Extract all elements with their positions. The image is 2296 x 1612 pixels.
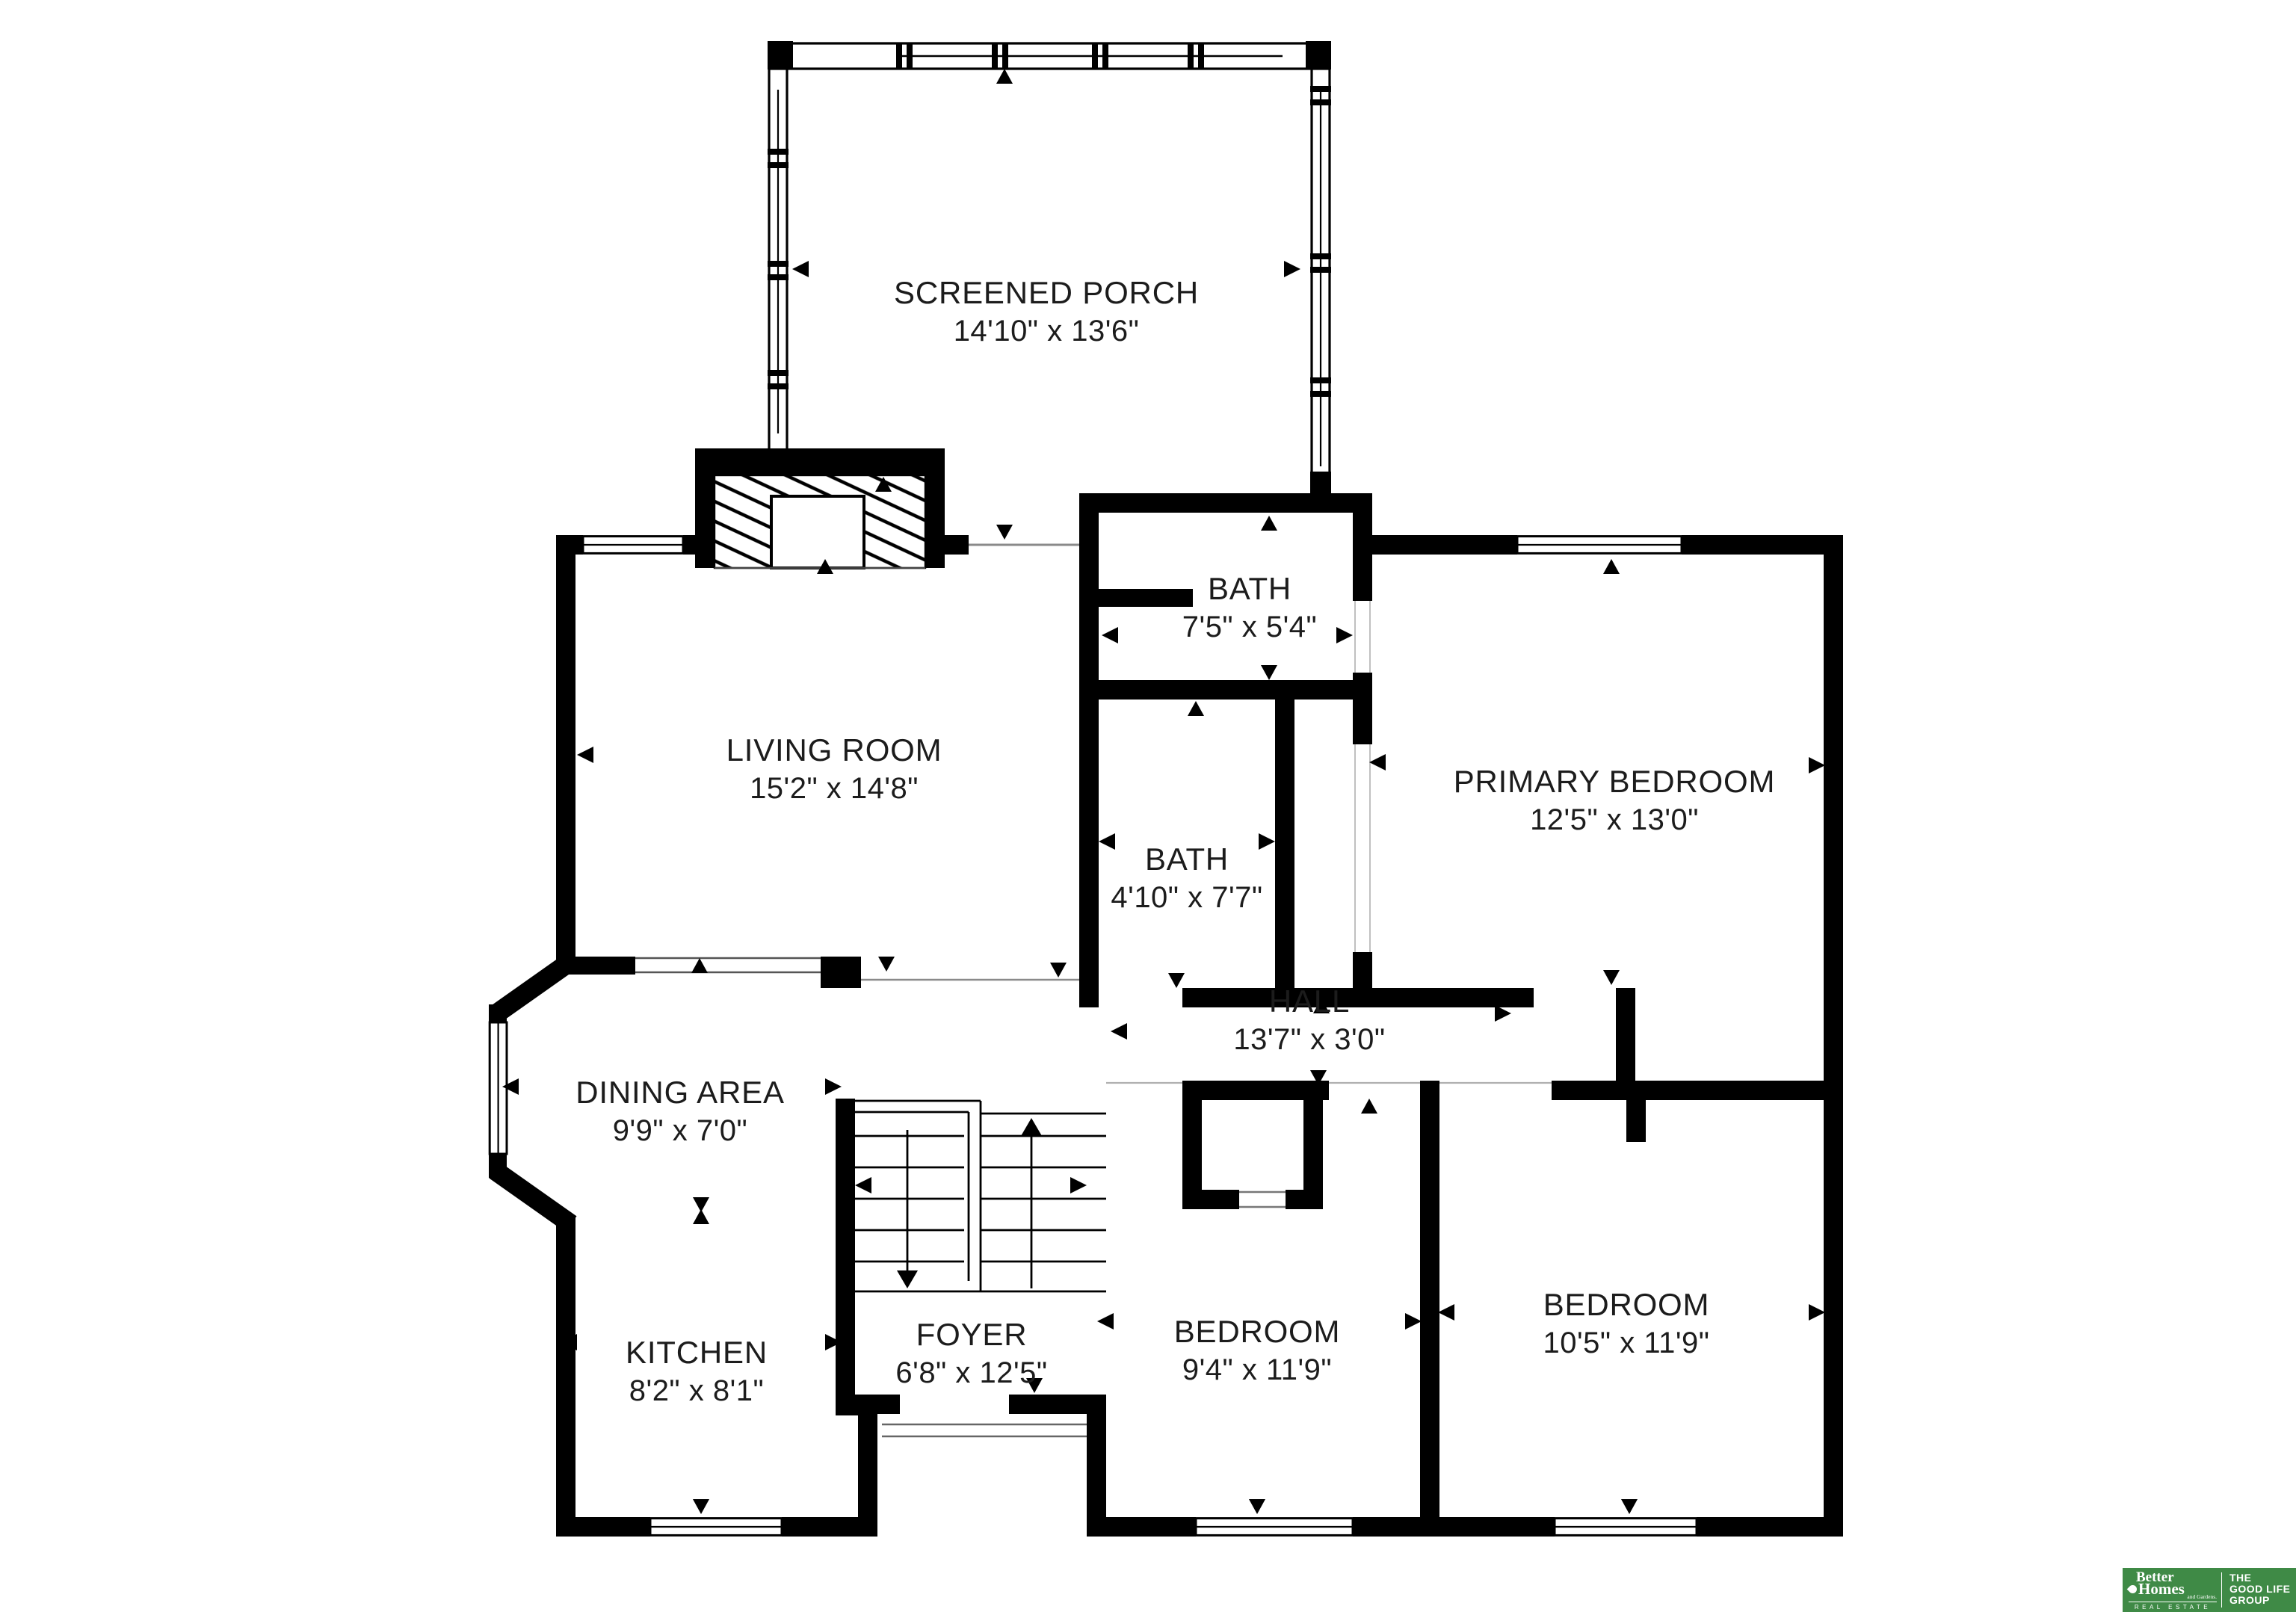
- arrow-left-icon: [792, 261, 809, 277]
- brand-tagline: THE GOOD LIFE GROUP: [2222, 1568, 2296, 1612]
- arrow-down-icon: [1261, 665, 1277, 680]
- arrow-up-icon: [693, 1209, 709, 1224]
- fireplace: [695, 448, 945, 568]
- arrow-down-icon: [1249, 1499, 1265, 1514]
- arrow-down-icon: [996, 525, 1013, 540]
- arrow-down-icon: [1621, 1499, 1638, 1514]
- arrow-left-icon: [577, 747, 593, 763]
- window-primary-top: [1517, 537, 1682, 554]
- arrow-down-icon: [1168, 973, 1185, 988]
- window-bedroom-right-bottom: [1555, 1519, 1697, 1536]
- arrow-right-icon: [825, 1078, 842, 1095]
- room-dims: 7'5" x 5'4": [1182, 608, 1317, 646]
- arrow-right-icon: [1809, 757, 1825, 773]
- room-dims: 4'10" x 7'7": [1111, 879, 1262, 916]
- room-name: LIVING ROOM: [726, 731, 942, 770]
- brand-subtext: REAL ESTATE: [2129, 1602, 2217, 1611]
- porch-screen-walls: [768, 42, 1330, 493]
- room-label-dining-area: DINING AREA 9'9" x 7'0": [575, 1073, 785, 1149]
- arrow-up-icon: [1603, 559, 1620, 574]
- room-dims: 14'10" x 13'6": [894, 312, 1199, 350]
- arrow-right-icon: [1070, 1177, 1087, 1193]
- brand-line3: and Gardens.: [2157, 1594, 2217, 1599]
- floor-plan-drawing: [0, 0, 2296, 1611]
- room-dims: 13'7" x 3'0": [1233, 1021, 1385, 1058]
- window-kitchen-bottom: [650, 1519, 782, 1536]
- room-label-screened-porch: SCREENED PORCH 14'10" x 13'6": [894, 274, 1199, 350]
- window-bedroom-left-bottom: [1196, 1519, 1353, 1536]
- arrow-left-icon: [855, 1177, 871, 1193]
- room-label-foyer: FOYER 6'8" x 12'5": [895, 1315, 1047, 1392]
- arrow-left-icon: [1438, 1304, 1454, 1321]
- room-label-primary-bedroom: PRIMARY BEDROOM 12'5" x 13'0": [1454, 762, 1776, 839]
- room-name: HALL: [1233, 982, 1385, 1021]
- brand-logo: Better Homes and Gardens. REAL ESTATE TH…: [2123, 1568, 2296, 1612]
- room-dims: 9'4" x 11'9": [1174, 1351, 1341, 1389]
- room-label-bedroom-right: BEDROOM 10'5" x 11'9": [1543, 1285, 1710, 1362]
- arrow-left-icon: [1369, 754, 1386, 771]
- room-name: BATH: [1111, 840, 1262, 879]
- arrow-up-icon: [996, 69, 1013, 84]
- arrow-left-icon: [1102, 627, 1118, 643]
- room-label-bath-hall: BATH 4'10" x 7'7": [1111, 840, 1262, 916]
- stairs-down-arrow: [897, 1130, 918, 1288]
- arrow-right-icon: [1405, 1313, 1422, 1330]
- room-name: PRIMARY BEDROOM: [1454, 762, 1776, 801]
- arrow-down-icon: [1603, 970, 1620, 985]
- tagline-line2: GOOD LIFE: [2229, 1584, 2296, 1595]
- arrow-down-icon: [878, 957, 895, 972]
- room-name: KITCHEN: [626, 1333, 768, 1372]
- room-dims: 8'2" x 8'1": [626, 1372, 768, 1409]
- floor-plan: SCREENED PORCH 14'10" x 13'6" LIVING ROO…: [0, 0, 2296, 1612]
- room-name: DINING AREA: [575, 1073, 785, 1112]
- room-label-hall: HALL 13'7" x 3'0": [1233, 982, 1385, 1058]
- arrow-up-icon: [1261, 516, 1277, 531]
- arrow-left-icon: [1111, 1023, 1127, 1040]
- arrow-up-icon: [1361, 1099, 1377, 1114]
- tagline-line3: GROUP: [2229, 1595, 2296, 1606]
- room-dims: 15'2" x 14'8": [726, 770, 942, 807]
- arrow-right-icon: [1495, 1005, 1511, 1022]
- arrow-right-icon: [1809, 1304, 1825, 1321]
- arrow-left-icon: [1097, 1313, 1114, 1330]
- arrow-down-icon: [1050, 963, 1067, 978]
- room-label-bath-top: BATH 7'5" x 5'4": [1182, 569, 1317, 646]
- room-dims: 10'5" x 11'9": [1543, 1324, 1710, 1362]
- room-name: BATH: [1182, 569, 1317, 608]
- room-dims: 6'8" x 12'5": [895, 1354, 1047, 1392]
- room-label-living-room: LIVING ROOM 15'2" x 14'8": [726, 731, 942, 807]
- tagline-line1: THE: [2229, 1572, 2296, 1584]
- stairs: [855, 1101, 1106, 1291]
- stairs-up-arrow: [1021, 1118, 1042, 1288]
- arrow-up-icon: [1188, 701, 1204, 716]
- window-living-top: [583, 537, 683, 554]
- arrow-down-icon: [693, 1499, 709, 1514]
- room-label-kitchen: KITCHEN 8'2" x 8'1": [626, 1333, 768, 1409]
- room-dims: 12'5" x 13'0": [1454, 801, 1776, 839]
- room-name: BEDROOM: [1174, 1312, 1341, 1351]
- room-dims: 9'9" x 7'0": [575, 1112, 785, 1149]
- brand-logo-left: Better Homes and Gardens. REAL ESTATE: [2123, 1568, 2221, 1612]
- arrow-right-icon: [1336, 627, 1353, 643]
- room-name: FOYER: [895, 1315, 1047, 1354]
- room-name: SCREENED PORCH: [894, 274, 1199, 312]
- room-label-bedroom-left: BEDROOM 9'4" x 11'9": [1174, 1312, 1341, 1389]
- arrow-up-icon: [691, 958, 708, 973]
- leaf-icon: [2127, 1583, 2139, 1595]
- window-dining-bay: [490, 1022, 507, 1154]
- arrow-right-icon: [1284, 261, 1300, 277]
- room-name: BEDROOM: [1543, 1285, 1710, 1324]
